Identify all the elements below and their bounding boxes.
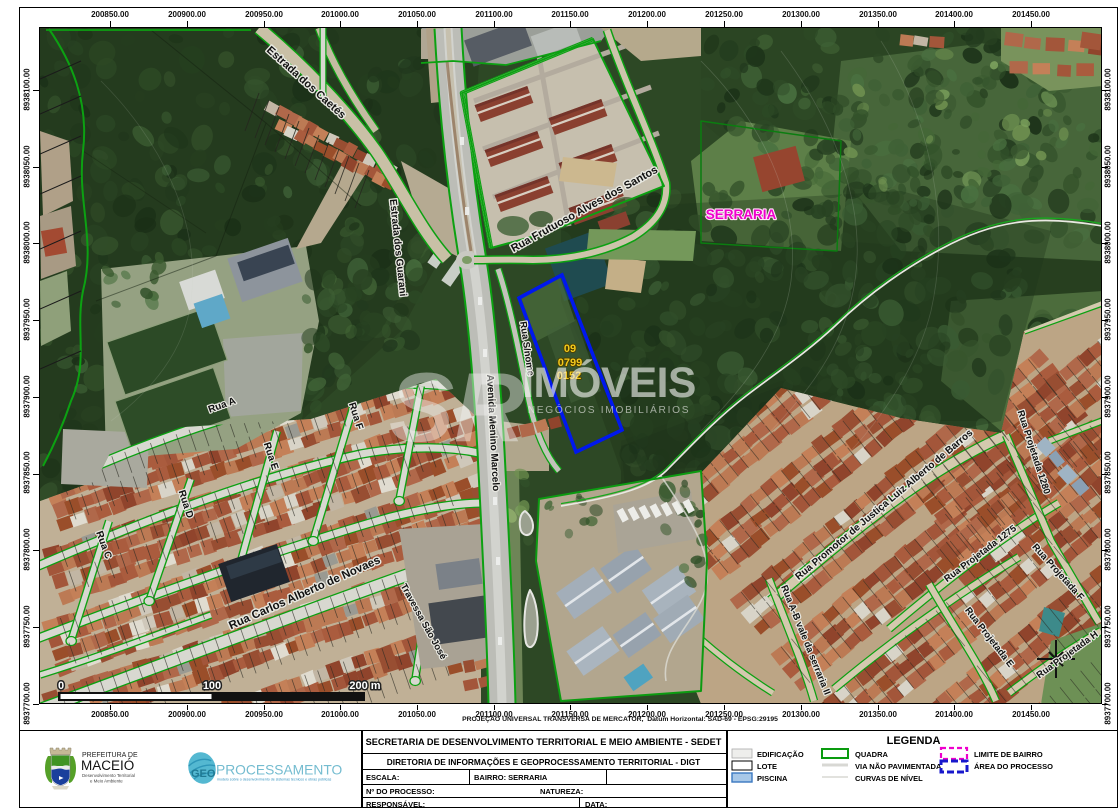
svg-text:09: 09 xyxy=(564,343,576,355)
svg-text:200 m: 200 m xyxy=(349,680,380,692)
svg-text:LIMITE DE BAIRRO: LIMITE DE BAIRRO xyxy=(974,750,1043,759)
svg-text:LOTE: LOTE xyxy=(757,762,777,771)
svg-text:0: 0 xyxy=(58,680,64,692)
svg-text:PISCINA: PISCINA xyxy=(757,774,788,783)
svg-text:EDIFICAÇÃO: EDIFICAÇÃO xyxy=(757,750,804,759)
svg-text:NEGÓCIOS IMOBILIÁRIOS: NEGÓCIOS IMOBILIÁRIOS xyxy=(528,403,691,416)
svg-text:CURVAS DE NÍVEL: CURVAS DE NÍVEL xyxy=(855,774,923,783)
svg-text:QUADRA: QUADRA xyxy=(855,750,888,759)
svg-text:Desenvolvimento Territorial: Desenvolvimento Territorial xyxy=(82,773,135,778)
svg-text:ÁREA DO PROCESSO: ÁREA DO PROCESSO xyxy=(974,762,1053,771)
svg-text:GEO: GEO xyxy=(191,768,216,780)
svg-text:modelo sobre o desenvolvimento: modelo sobre o desenvolvimento de sistem… xyxy=(217,778,331,782)
svg-text:SR: SR xyxy=(389,352,525,462)
svg-text:PROCESSAMENTO: PROCESSAMENTO xyxy=(216,763,343,778)
svg-text:VIA NÃO PAVIMENTADA: VIA NÃO PAVIMENTADA xyxy=(855,762,942,771)
svg-text:IMÓVEIS: IMÓVEIS xyxy=(522,358,696,407)
svg-text:SERRARIA: SERRARIA xyxy=(706,207,777,222)
svg-text:e Meio Ambiente: e Meio Ambiente xyxy=(90,779,123,784)
svg-text:100: 100 xyxy=(203,680,221,692)
svg-text:MACEIÓ: MACEIÓ xyxy=(81,758,134,773)
